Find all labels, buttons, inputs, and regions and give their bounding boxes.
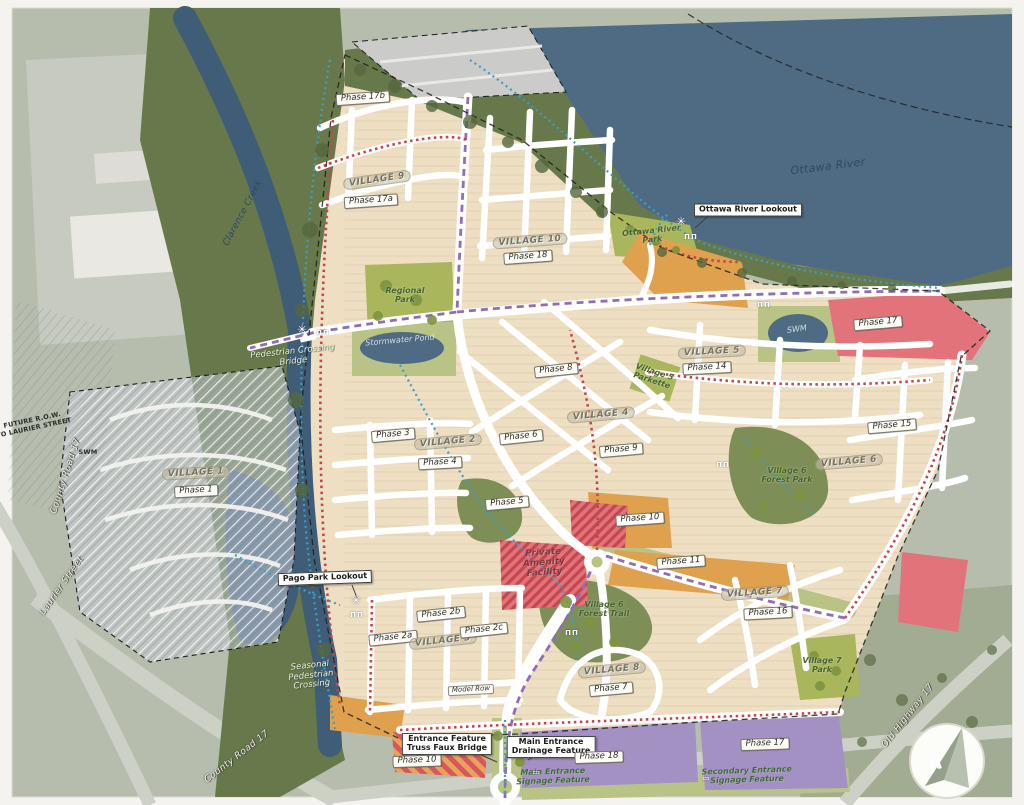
master-plan-page: N Phase 17bVILLAGE 9Phase 17aClarence Cr… bbox=[0, 0, 1024, 805]
north-arrow-icon: N bbox=[910, 724, 984, 798]
map-graphics: N bbox=[0, 0, 1024, 805]
